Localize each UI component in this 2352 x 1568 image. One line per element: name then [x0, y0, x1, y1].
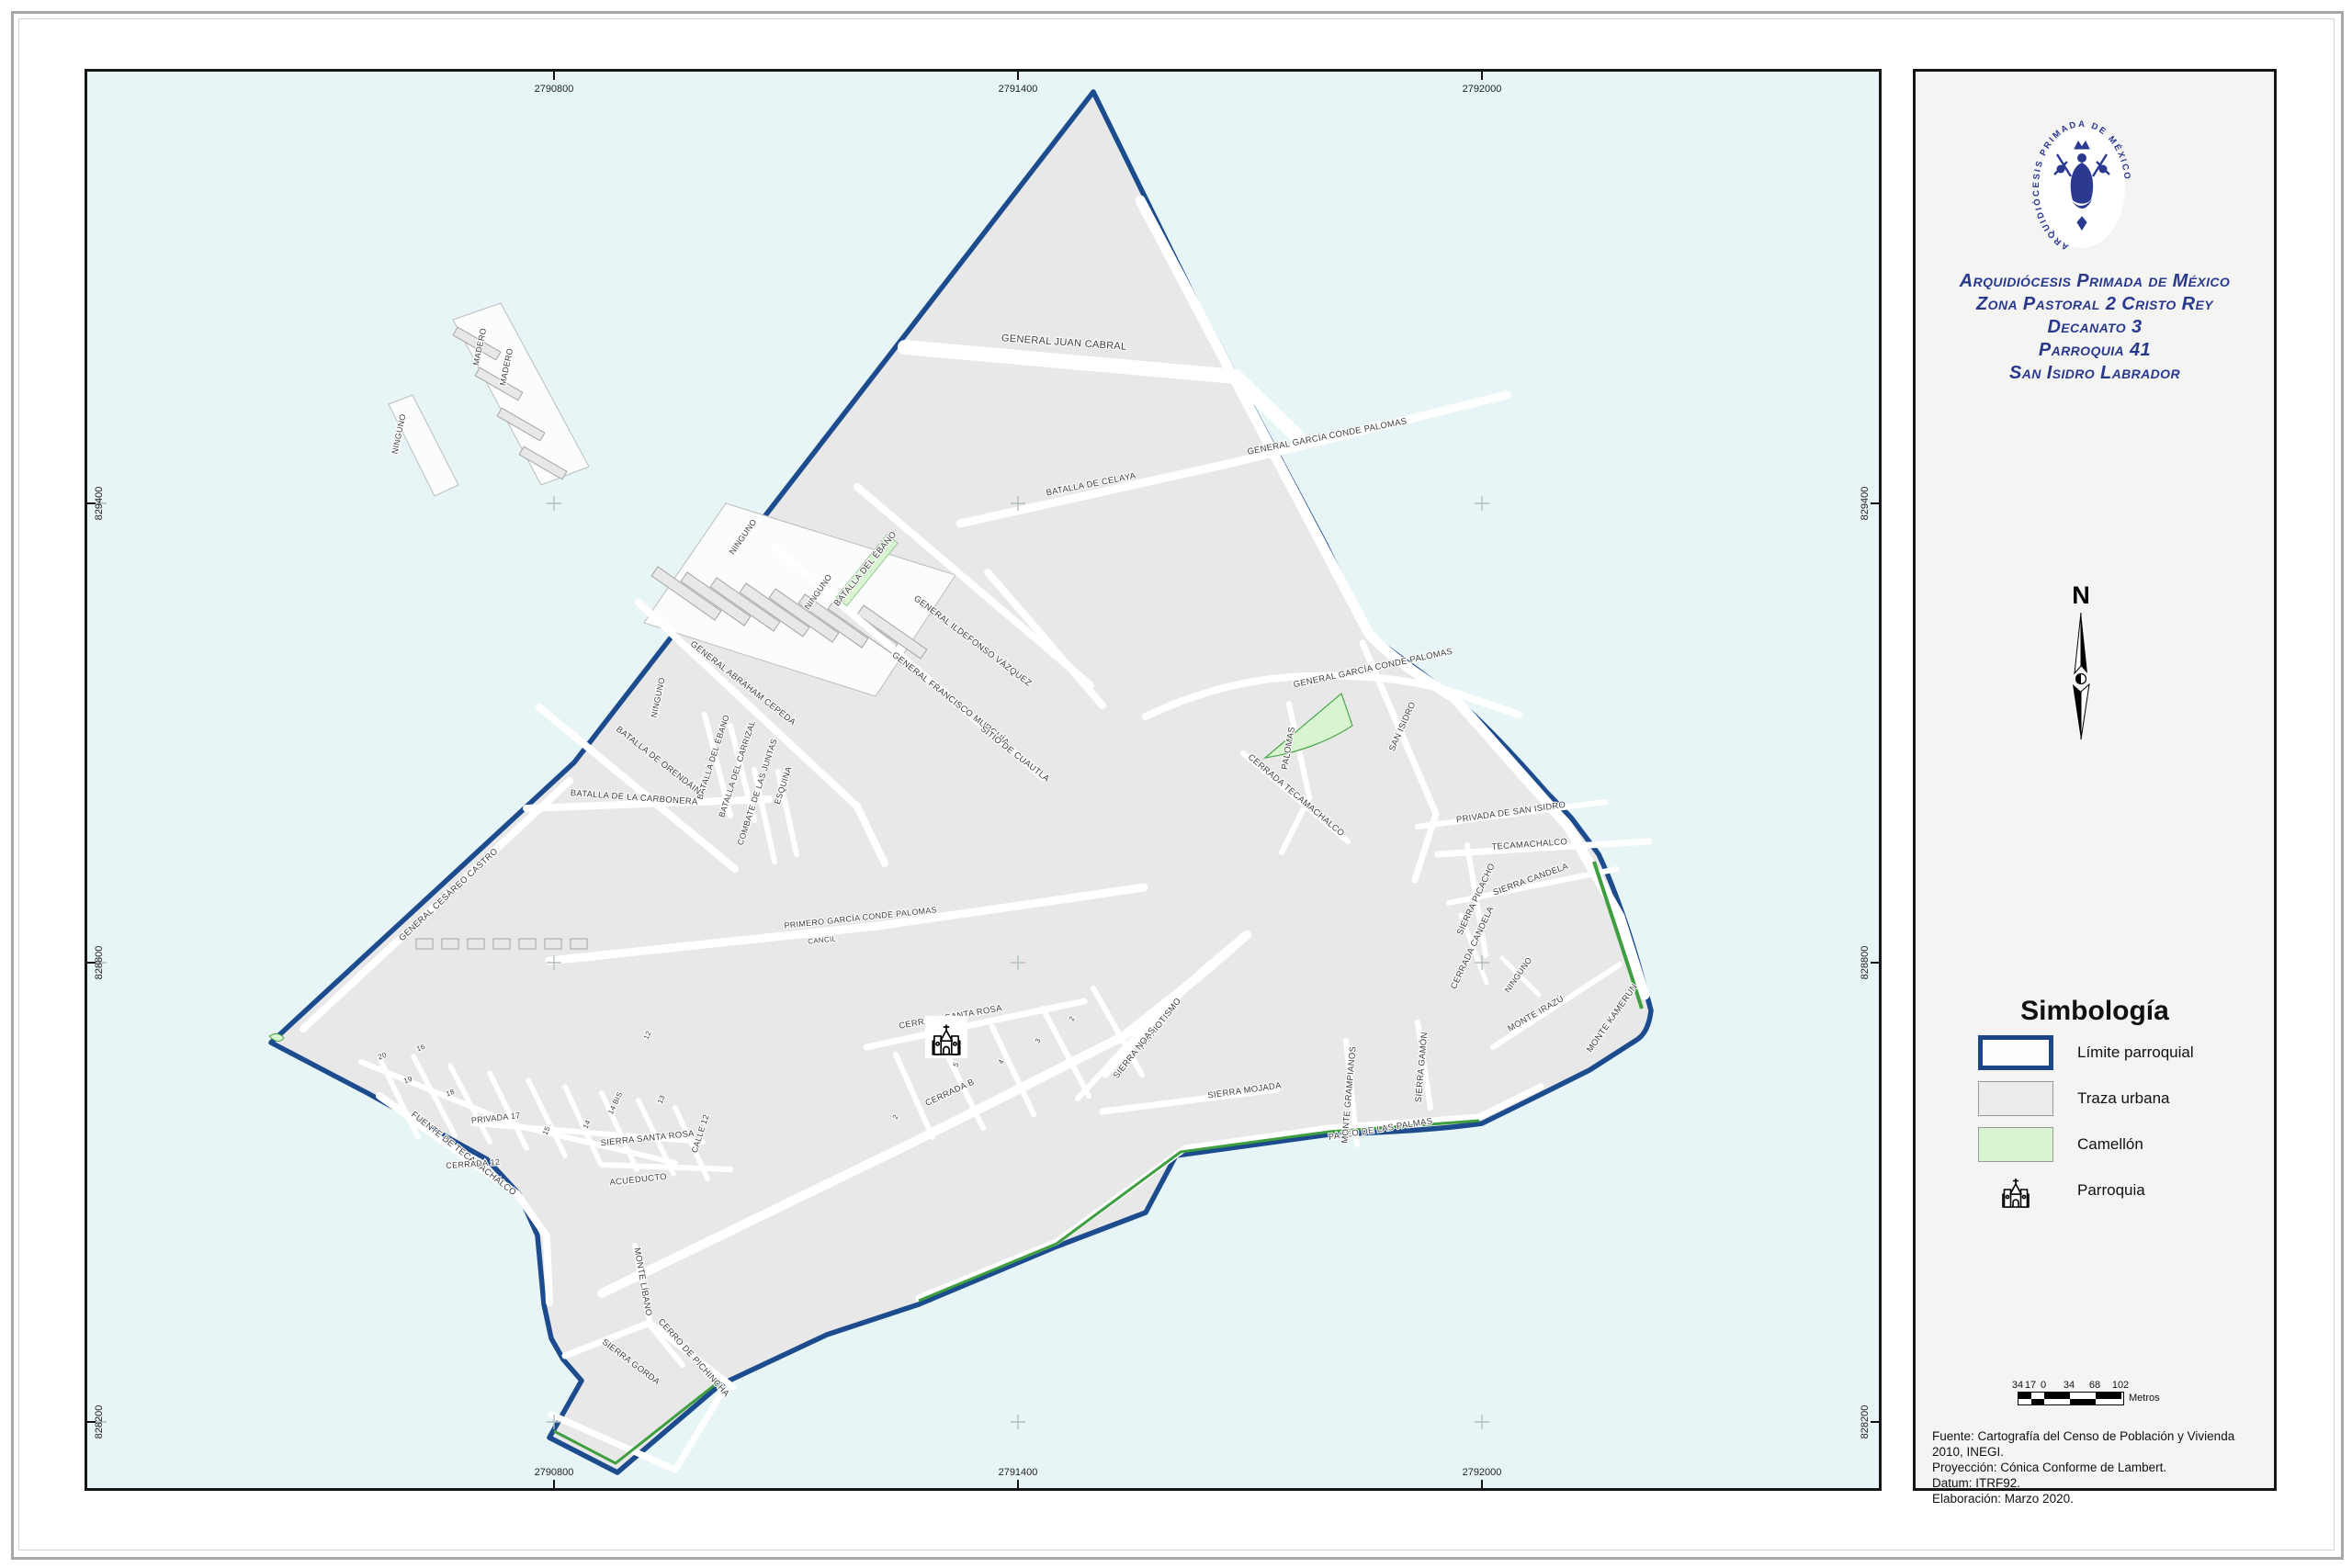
- source-credits: Fuente: Cartografía del Censo de Poblaci…: [1932, 1428, 2263, 1506]
- archdiocese-seal: ARQUIDIÓCESIS PRIMADA DE MÉXICO: [2027, 108, 2137, 255]
- source-line: Elaboración: Marzo 2020.: [1932, 1491, 2263, 1506]
- title-line-zone: Zona Pastoral 2 Cristo Rey: [1916, 293, 2274, 316]
- legend-item-label: Parroquia: [2077, 1181, 2145, 1200]
- scale-number: 34: [2064, 1380, 2075, 1391]
- legend-item-label: Límite parroquial: [2077, 1043, 2194, 1062]
- title-line-organization: Arquidiócesis Primada de México: [1916, 270, 2274, 293]
- north-arrow: N: [2044, 581, 2118, 747]
- legend-item-camellon: Camellón: [1978, 1126, 2143, 1163]
- coord-label: 2791400: [999, 84, 1038, 95]
- limite-parroquial-swatch: [1978, 1035, 2053, 1070]
- scale-bar-graphic: [2018, 1392, 2124, 1405]
- source-line: Proyección: Cónica Conforme de Lambert.: [1932, 1460, 2263, 1475]
- coord-label: 2790800: [535, 84, 574, 95]
- legend-item-traza: Traza urbana: [1978, 1080, 2169, 1117]
- scale-number: 0: [2041, 1380, 2046, 1391]
- coord-label: 828800: [1860, 946, 1871, 980]
- parroquia-swatch: [1978, 1173, 2053, 1208]
- legend-item-label: Camellón: [2077, 1135, 2143, 1154]
- coord-label: 828800: [94, 946, 105, 980]
- camellon-swatch: [1978, 1127, 2053, 1162]
- map-canvas: 2790800 2791400 2792000 2790800 2791400 …: [85, 69, 1882, 1491]
- scale-number: 68: [2089, 1380, 2100, 1391]
- coord-label: 2790800: [535, 1467, 574, 1478]
- north-label: N: [2044, 581, 2118, 610]
- church-icon: [1997, 1172, 2034, 1209]
- title-line-parish-number: Parroquia 41: [1916, 339, 2274, 362]
- map-svg: 2790800 2791400 2792000 2790800 2791400 …: [87, 72, 1879, 1488]
- title-line-parish-name: San Isidro Labrador: [1916, 362, 2274, 385]
- legend-item-limite: Límite parroquial: [1978, 1034, 2194, 1071]
- coord-label: 2792000: [1463, 84, 1502, 95]
- scale-number: 102: [2112, 1380, 2129, 1391]
- coord-label: 829400: [1860, 487, 1871, 521]
- scale-bar: 34 17 0 34 68 102: [2018, 1380, 2192, 1416]
- source-line: Datum: ITRF92.: [1932, 1475, 2263, 1491]
- map-title-block: Arquidiócesis Primada de México Zona Pas…: [1916, 270, 2274, 385]
- traza-urbana-swatch: [1978, 1081, 2053, 1116]
- coord-label: 2791400: [999, 1467, 1038, 1478]
- legend-item-label: Traza urbana: [2077, 1089, 2169, 1108]
- scale-number: 34: [2012, 1380, 2023, 1391]
- scale-number: 17: [2025, 1380, 2036, 1391]
- map-document-page: 2790800 2791400 2792000 2790800 2791400 …: [0, 0, 2352, 1568]
- coord-label: 829400: [94, 487, 105, 521]
- title-line-deanery: Decanato 3: [1916, 316, 2274, 339]
- coord-label: 2792000: [1463, 1467, 1502, 1478]
- parish-church-marker: [925, 1016, 967, 1058]
- scale-unit-label: Metros: [2129, 1393, 2160, 1404]
- coord-label: 828200: [94, 1405, 105, 1439]
- legend-item-parroquia: Parroquia: [1978, 1172, 2145, 1209]
- map-layout-sidebar: ARQUIDIÓCESIS PRIMADA DE MÉXICO Arquidió…: [1913, 69, 2277, 1491]
- north-needle-icon: [2063, 610, 2099, 743]
- coord-label: 828200: [1860, 1405, 1871, 1439]
- source-line: Fuente: Cartografía del Censo de Poblaci…: [1932, 1428, 2263, 1460]
- legend-title: Simbología: [1916, 996, 2274, 1027]
